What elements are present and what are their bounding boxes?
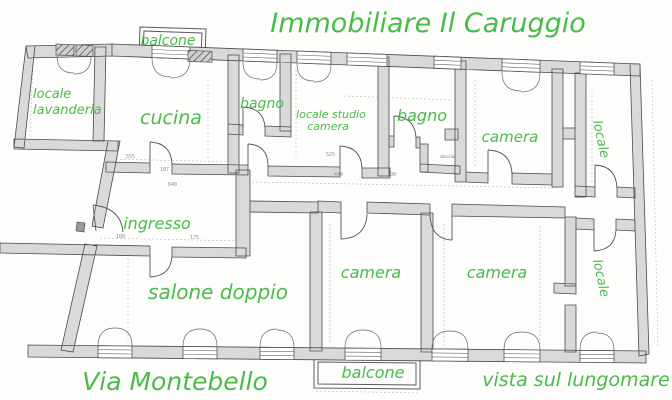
entrance-knob [76,222,85,232]
room-label-ingresso: ingresso [123,214,191,233]
dim-label: 175 [190,235,199,241]
dim-label: 555 [126,154,135,160]
room-label-salone: salone doppio [148,280,288,304]
dim-label: 107 [160,167,169,173]
window-glass [98,46,614,363]
dim-label: 90 [390,172,396,178]
window-frame-lines [98,50,614,359]
room-label-doccia: doccia [440,154,455,160]
room-label-locale-top: locale [589,119,612,160]
dim-label: 444 [334,172,343,178]
room-label-camera-right: camera [467,263,527,282]
room-label-balcone-top: balcone [140,33,195,49]
room-label-balcone-bottom: balcone [342,363,405,382]
room-label-locale-bottom: locale [589,258,612,299]
dim-label: 100 [116,234,125,240]
room-label-bagno: bagno [397,106,447,125]
page-title: Immobiliare Il Caruggio [270,8,586,39]
dim-label: 640 [168,182,177,188]
room-label-studio-line2: camera [307,120,349,133]
room-label-cucina: cucina [140,107,202,129]
street-label-vista-lungomare: vista sul lungomare [482,369,670,391]
floor-plan-drawing: 555 107 640 100 175 444 525 90 Immobilia… [0,0,672,400]
floor-plan-page: 555 107 640 100 175 444 525 90 Immobilia… [0,0,672,400]
room-label-camera-top: camera [482,128,539,146]
room-label-lavanderia-line2: lavanderia [33,103,102,118]
room-label-bagno-small: bagno [240,96,284,112]
dim-label: 525 [326,152,335,158]
room-label-camera-left: camera [341,263,401,282]
street-label-via-montebello: Via Montebello [82,367,268,396]
room-label-lavanderia-line1: locale [33,87,71,102]
building-walls [0,44,649,363]
